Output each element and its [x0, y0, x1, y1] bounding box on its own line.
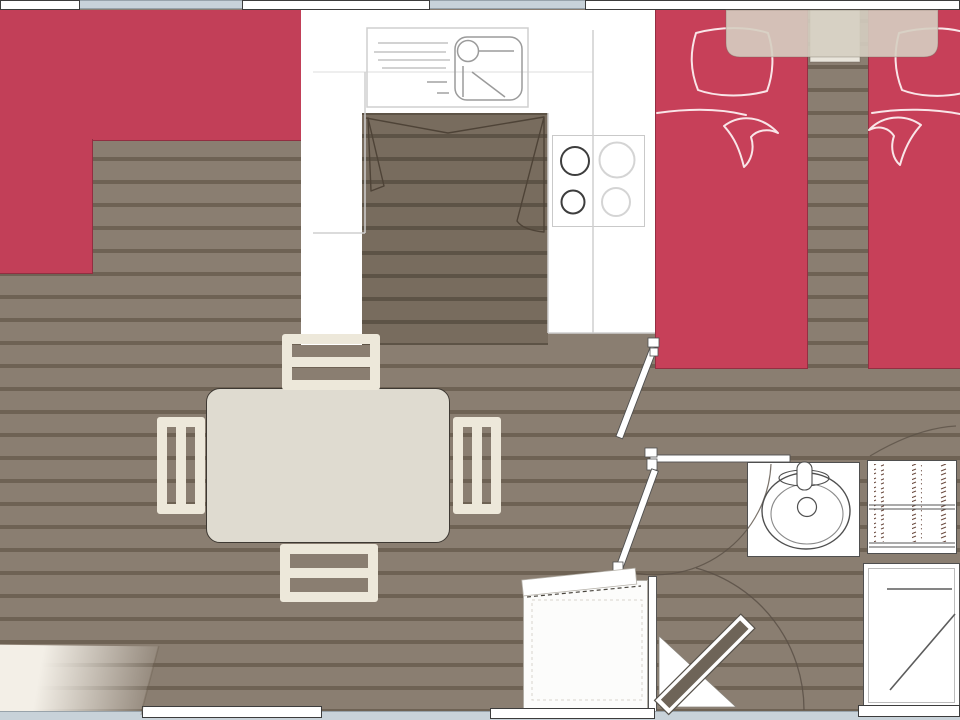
floorplan-canvas — [0, 0, 960, 720]
chair-backrest — [472, 427, 482, 504]
window-top-left — [78, 0, 244, 9]
shower — [863, 563, 960, 708]
chair-backrest — [292, 357, 370, 367]
bedside-shelf — [810, 10, 860, 62]
bed-2 — [868, 10, 960, 369]
shower-tray — [868, 568, 955, 703]
sofa-top-bench — [0, 10, 302, 141]
bed-1 — [655, 10, 808, 369]
wall-bottom-2 — [490, 708, 655, 719]
kitchen-floor-dark-patch — [362, 113, 548, 345]
wall-top-1 — [0, 0, 80, 10]
chair-top — [282, 334, 380, 390]
kitchen-floor-strip — [548, 333, 655, 345]
bedroom-door — [616, 338, 659, 439]
hob — [552, 135, 645, 227]
chair-backrest — [176, 427, 186, 504]
dining-table — [206, 388, 450, 543]
chair-left — [157, 417, 205, 514]
wall-bottom-3 — [858, 705, 960, 717]
wall-post-entrance — [648, 576, 657, 712]
window-top-center — [428, 0, 587, 9]
wardrobe — [867, 460, 957, 554]
chair-backrest — [290, 568, 368, 578]
entrance-door — [655, 568, 804, 714]
chair-right — [453, 417, 501, 514]
sofa-left-bench — [0, 139, 93, 274]
entrance-door-swing-arc — [696, 568, 804, 710]
wall-top-2 — [242, 0, 430, 10]
wardrobe-door-swing-arc — [870, 426, 956, 456]
chair-bottom — [280, 544, 378, 602]
washbasin — [747, 462, 860, 557]
storage-cabinet — [523, 580, 648, 710]
wall-bottom-1 — [142, 706, 322, 718]
wall-top-3 — [585, 0, 960, 10]
